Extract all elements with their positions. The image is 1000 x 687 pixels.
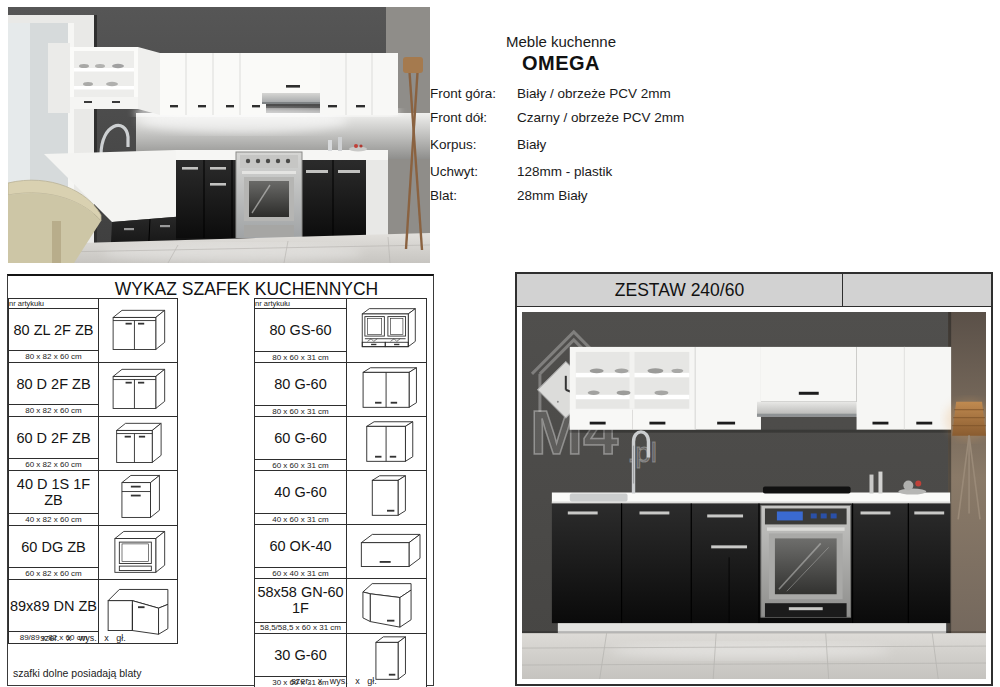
hanging-bag — [403, 57, 423, 73]
cabinet-list-panel: WYKAZ SZAFEK KUCHENNYCH nr artykułu80 ZL… — [7, 274, 434, 686]
dimensions-legend-right: szer. x wys. x gł. — [258, 676, 410, 686]
cabinet-drawing-cell — [99, 471, 178, 526]
upper-cabinets — [48, 43, 398, 115]
item-code: 60 OK-40 — [255, 525, 347, 568]
base-cabinets-group: nr artykułu80 ZL 2F ZB80 x 82 x 60 cm80 … — [8, 298, 178, 644]
cabinet-drawing-cell — [347, 525, 427, 579]
item-dims: 80 x 82 x 60 cm — [9, 351, 99, 363]
glass-shelf-unit — [570, 347, 695, 430]
cabinet-group-table: nr artykułu80 ZL 2F ZB80 x 82 x 60 cm80 … — [8, 298, 178, 644]
side-wall-warm — [948, 312, 986, 679]
hood-section — [757, 347, 861, 417]
item-code: 80 ZL 2F ZB — [9, 309, 99, 351]
cabinet-drawing-wall-corner-icon — [349, 579, 425, 629]
product-category: Meble kuchenne — [430, 33, 692, 50]
item-code: 30 G-60 — [255, 634, 347, 677]
dimensions-legend-left: szer. x wys. x gł. — [12, 633, 154, 643]
item-dims: 80 x 60 x 31 cm — [255, 352, 347, 363]
spec-label: Front dół: — [430, 110, 517, 125]
zestaw-header: ZESTAW 240/60 — [517, 274, 991, 307]
corner-kitchen-photo — [8, 7, 430, 263]
base-cabinets-note: szafki dolne posiadają blaty — [13, 667, 141, 679]
cabinet-drawing-wall-2door-narrow-icon — [349, 419, 425, 465]
item-code: 80 G-60 — [255, 363, 347, 406]
cabinet-group-table: nr artykułu80 GS-6080 x 60 x 31 cm80 G-6… — [254, 298, 427, 687]
cabinet-drawing-base-drawer-door-icon — [100, 471, 176, 521]
spec-label: Front góra: — [430, 86, 517, 101]
item-code: 40 G-60 — [255, 471, 347, 514]
spec-label: Korpus: — [430, 137, 517, 152]
spec-row-blat: Blat: 28mm Biały — [430, 188, 692, 203]
cabinet-drawing-wall-2door-icon — [349, 365, 425, 411]
product-sheet: Meble kuchenne OMEGA Front góra: Biały /… — [0, 0, 1000, 687]
oven-display — [777, 511, 803, 520]
cabinet-drawing-cell — [347, 579, 427, 634]
item-code: 89x89 DN ZB — [9, 580, 99, 632]
spec-row-uchwyt: Uchwyt: 128mm - plastik — [430, 164, 692, 179]
item-dims: 58,5/58,5 x 60 x 31 cm — [255, 622, 347, 633]
spec-value: 28mm Biały — [517, 188, 588, 203]
cabinet-drawing-base-2door-icon — [100, 364, 176, 412]
cabinet-drawing-wall-glass-icon — [349, 306, 425, 352]
stove — [236, 152, 302, 240]
cabinet-drawing-cell — [347, 363, 427, 417]
spec-row-front-dol: Front dół: Czarny / obrzeże PCV 2mm — [430, 110, 692, 125]
item-code: 40 D 1S 1F ZB — [9, 471, 99, 514]
item-dims: 80 x 82 x 60 cm — [9, 405, 99, 417]
item-dims: 80 x 60 x 31 cm — [255, 406, 347, 417]
spec-value: 128mm - plastik — [517, 164, 612, 179]
cabinet-drawing-cell — [99, 526, 178, 580]
zestaw-title: ZESTAW 240/60 — [517, 274, 843, 306]
cabinet-drawing-cell — [99, 299, 178, 363]
item-dims: 60 x 60 x 31 cm — [255, 460, 347, 471]
item-code: 60 DG ZB — [9, 526, 99, 568]
product-name: OMEGA — [430, 52, 692, 75]
item-code: 80 GS-60 — [255, 309, 347, 352]
item-code: 60 D 2F ZB — [9, 417, 99, 459]
item-dims: 40 x 60 x 31 cm — [255, 514, 347, 525]
item-dims: 60 x 82 x 60 cm — [9, 459, 99, 471]
item-dims: 40 x 82 x 60 cm — [9, 513, 99, 525]
spec-rows: Front góra: Biały / obrzeże PCV 2mm Fron… — [430, 86, 692, 203]
upper-cabinets — [570, 347, 951, 433]
sink — [570, 494, 628, 502]
item-code: 80 D 2F ZB — [9, 363, 99, 405]
cabinet-drawing-wall-flip-icon — [349, 528, 425, 572]
cabinet-drawing-base-2door-narrow-icon — [100, 418, 176, 466]
cabinet-drawing-base-2door-icon — [100, 305, 176, 353]
cabinet-drawing-cell — [347, 471, 427, 525]
spec-row-korpus: Korpus: Biały — [430, 137, 692, 152]
column-header: nr artykułu — [9, 299, 99, 309]
cabinet-list-title: WYKAZ SZAFEK KUCHENNYCH — [8, 279, 433, 300]
cooker-hood — [262, 53, 324, 104]
spec-value: Czarny / obrzeże PCV 2mm — [517, 110, 684, 125]
cabinet-drawing-cell — [347, 417, 427, 471]
column-header: nr artykułu — [255, 299, 347, 309]
wall-cabinets-group: nr artykułu80 GS-6080 x 60 x 31 cm80 G-6… — [254, 298, 427, 687]
induction-hob — [763, 487, 851, 494]
spec-value: Biały — [517, 137, 546, 152]
cabinet-drawing-cell — [99, 363, 178, 417]
product-specs: Meble kuchenne OMEGA Front góra: Biały /… — [430, 33, 692, 212]
spec-value: Biały / obrzeże PCV 2mm — [517, 86, 671, 101]
corner-kitchen-scene — [8, 7, 430, 263]
spec-label: Uchwyt: — [430, 164, 517, 179]
zestaw-kitchen-scene: M4 .pl — [522, 312, 986, 679]
item-code: 60 G-60 — [255, 417, 347, 460]
zestaw-kitchen-photo: M4 .pl — [522, 312, 986, 679]
spec-row-front-gora: Front góra: Biały / obrzeże PCV 2mm — [430, 86, 692, 101]
cabinet-drawing-cell — [99, 417, 178, 471]
oven — [761, 505, 851, 617]
cabinet-drawing-wall-1door-icon — [349, 473, 425, 519]
item-dims: 60 x 40 x 31 cm — [255, 568, 347, 579]
item-code: 58x58 GN-60 1F — [255, 579, 347, 623]
base-cabinets — [552, 503, 950, 623]
item-dims: 60 x 82 x 60 cm — [9, 568, 99, 580]
cabinet-side-panel — [366, 160, 388, 246]
cabinet-drawing-base-corner-icon — [100, 582, 176, 638]
open-shelf-unit — [70, 47, 138, 109]
zestaw-header-empty-cell — [843, 274, 991, 306]
cabinet-drawing-base-oven-icon — [100, 527, 176, 575]
spec-label: Blat: — [430, 188, 517, 203]
zestaw-panel: ZESTAW 240/60 — [515, 272, 993, 686]
cabinet-drawing-cell — [347, 299, 427, 363]
